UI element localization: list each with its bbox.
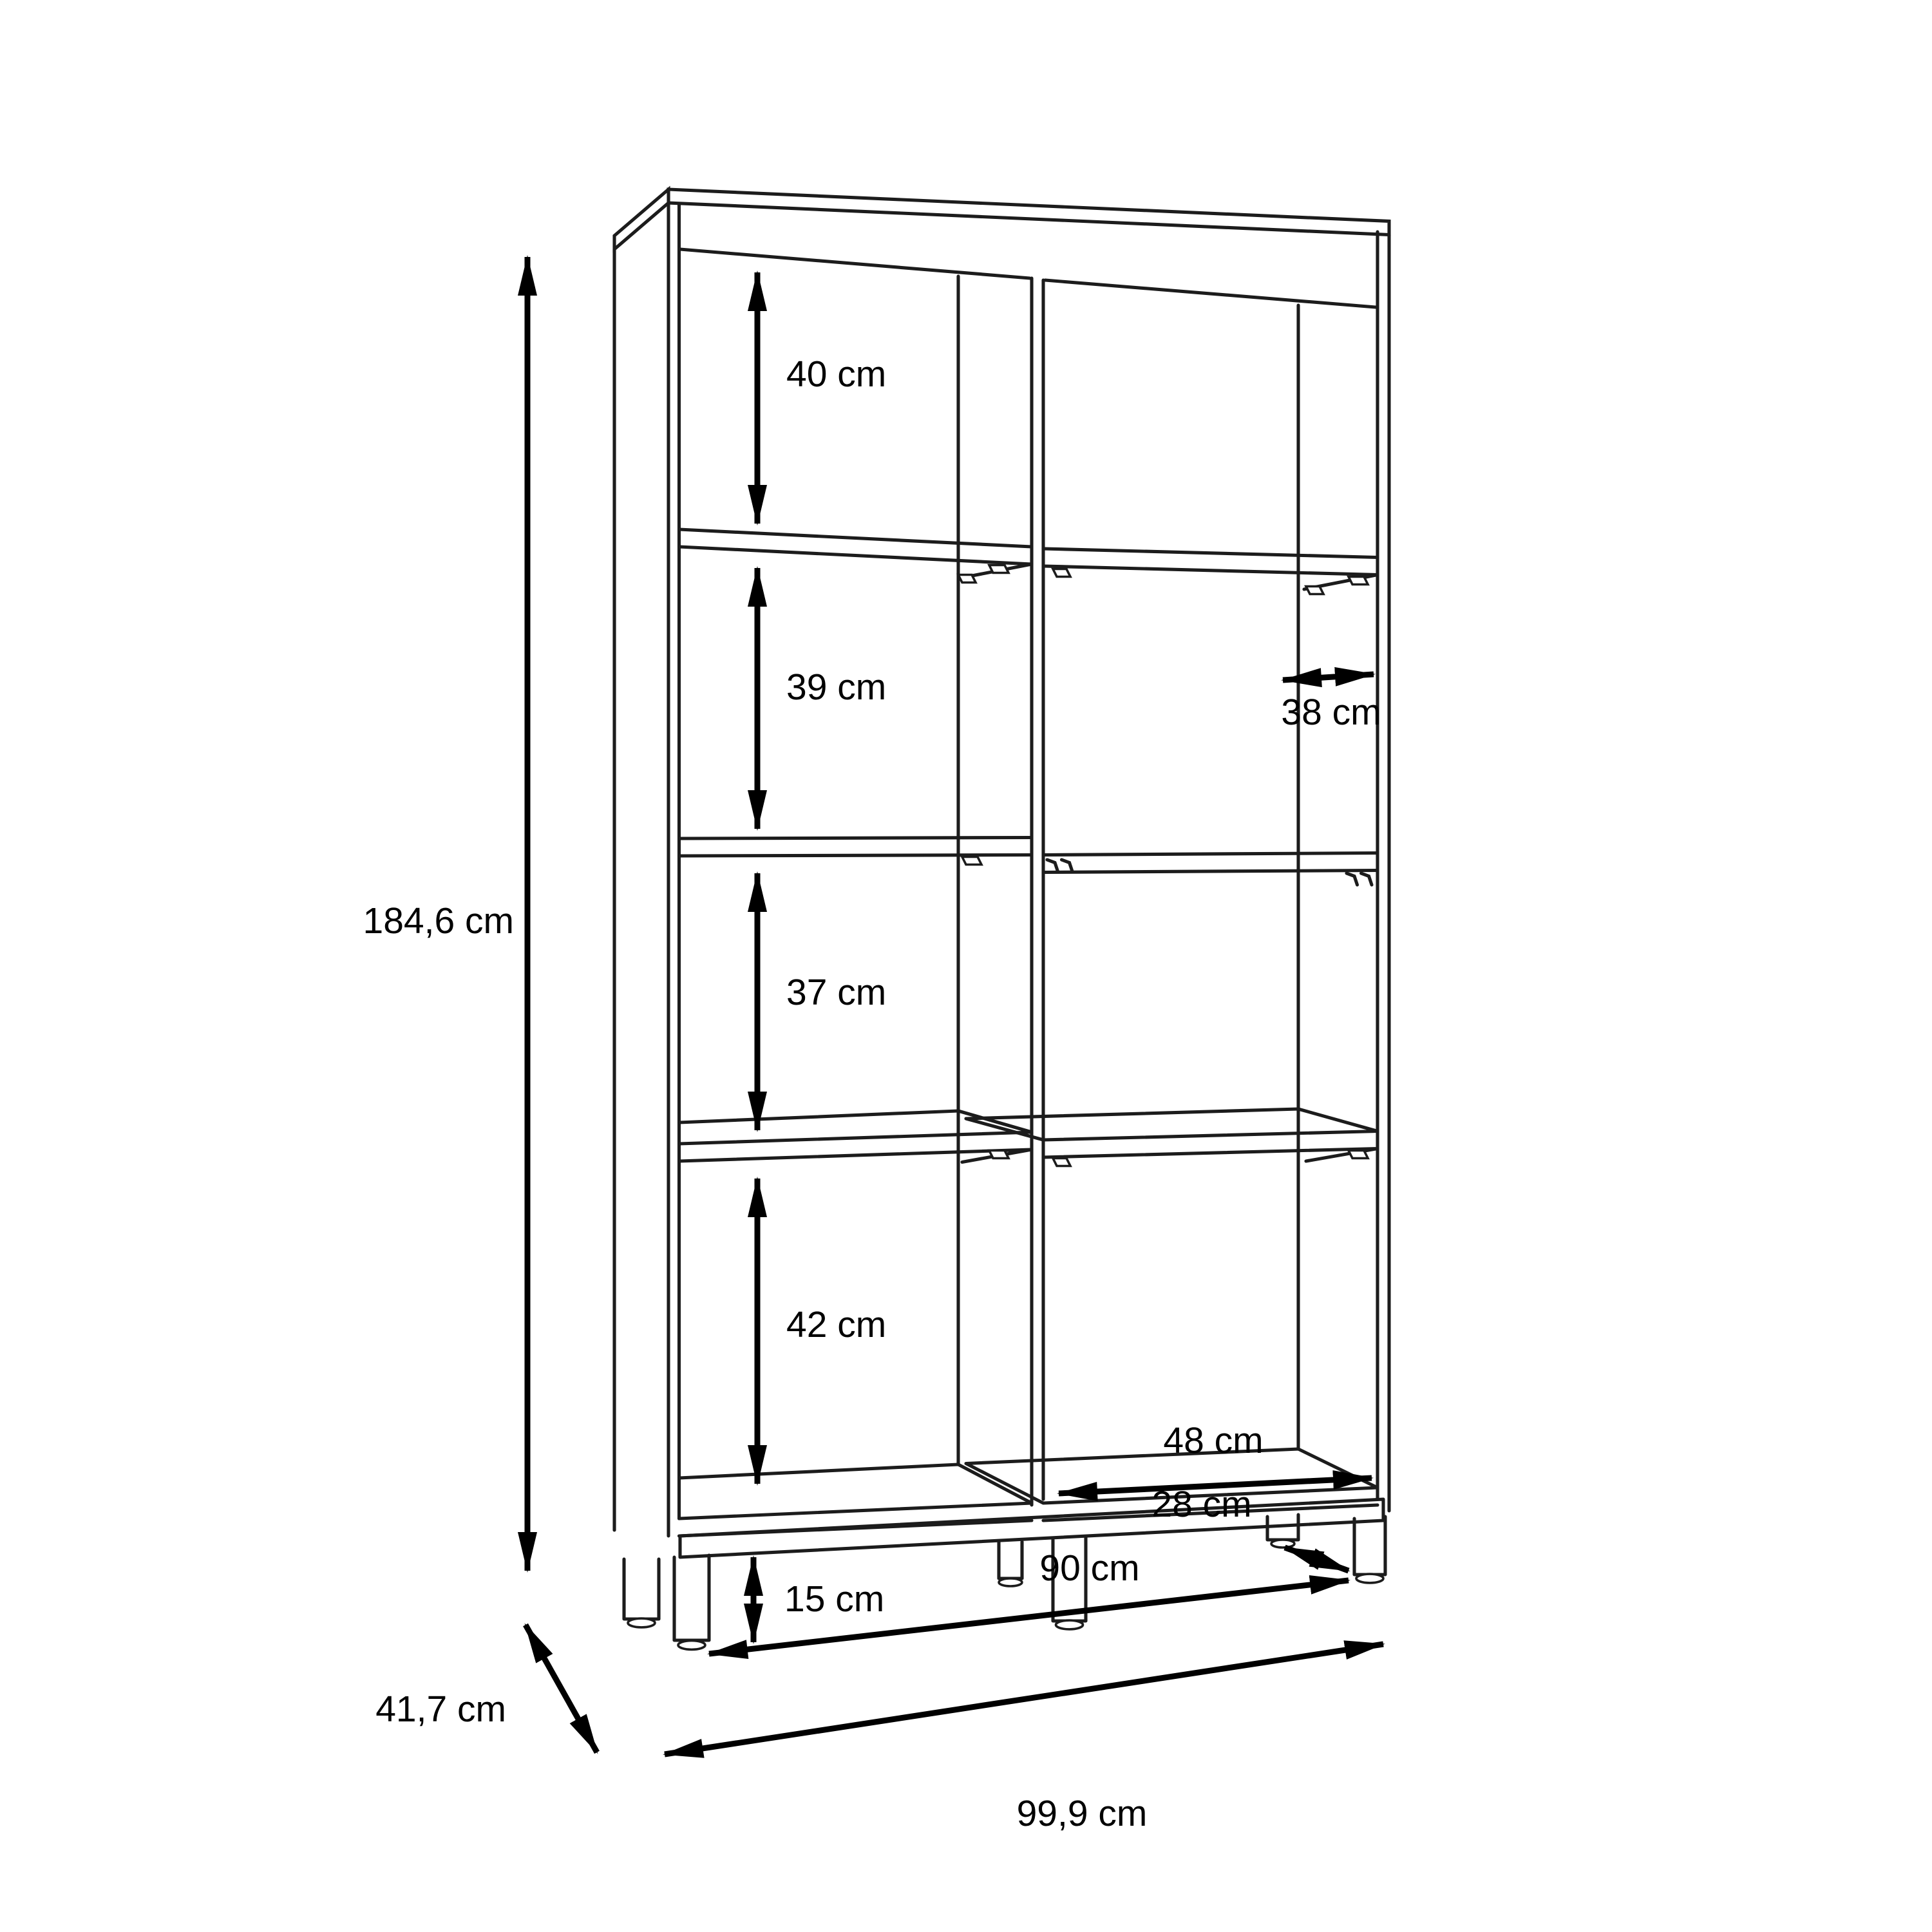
back-center-leg: [999, 1542, 1022, 1578]
top-board-front-edge: [668, 189, 1389, 235]
dim-overall-height: 184,6 cm: [363, 257, 527, 1571]
diagram-canvas: 184,6 cm 40 cm 39 cm 37 cm 42 cm 38 cm 4…: [0, 0, 1932, 1932]
left-panel-front-edge: [668, 203, 679, 1536]
dim-label-bottom-inner-width: 48 cm: [1163, 1420, 1263, 1461]
dim-overall-width: 99,9 cm: [665, 1644, 1383, 1834]
front-left-leg: [674, 1555, 709, 1640]
leg-foot: [999, 1578, 1022, 1586]
ceiling-back-edge-right: [1045, 280, 1376, 307]
cabinet-line-art: [614, 189, 1389, 1649]
base-frame-rail: [680, 1499, 1383, 1557]
shelf-hook: [1347, 873, 1372, 885]
right-panel-front-edge: [1378, 232, 1389, 1511]
dim-row3-height: 37 cm: [757, 873, 886, 1130]
dim-label-shelf-depth: 38 cm: [1281, 692, 1381, 733]
shelf-peg: [1349, 1151, 1368, 1159]
shelf-peg: [1349, 577, 1368, 585]
leg-foot: [1056, 1620, 1083, 1629]
front-right-leg: [1354, 1517, 1385, 1575]
leg-foot: [1271, 1540, 1294, 1548]
dim-label-row2-height: 39 cm: [786, 667, 886, 708]
dim-shelf-depth: 38 cm: [1281, 674, 1381, 733]
center-divider-front-edge: [1032, 278, 1043, 1505]
leg-foot: [1356, 1574, 1383, 1583]
leg-foot: [628, 1618, 655, 1627]
ceiling-back-edge-left: [680, 249, 1030, 278]
dim-label-overall-width: 99,9 cm: [1017, 1793, 1148, 1834]
bottom-boards: [679, 1449, 1378, 1536]
shelf-peg: [962, 857, 981, 865]
dim-row4-height: 42 cm: [757, 1179, 886, 1484]
dim-label-base-height: 15 cm: [784, 1578, 884, 1620]
dim-label-overall-depth: 41,7 cm: [375, 1689, 506, 1730]
dim-label-leg-span-width: 90 cm: [1039, 1548, 1139, 1589]
dim-row2-height: 39 cm: [757, 568, 886, 829]
shelf-peg: [1053, 569, 1070, 577]
shelf-peg: [989, 1151, 1009, 1159]
shelf-row2: [679, 838, 1378, 885]
dim-label-row3-height: 37 cm: [786, 972, 886, 1013]
back-left-leg: [624, 1559, 659, 1619]
dim-label-overall-height: 184,6 cm: [363, 900, 514, 942]
dim-base-height: 15 cm: [753, 1557, 884, 1642]
shelf-hook: [1047, 860, 1072, 871]
furniture-dimension-diagram: 184,6 cm 40 cm 39 cm 37 cm 42 cm 38 cm 4…: [0, 0, 1932, 1932]
shelf-row1: [679, 529, 1378, 594]
dim-label-row1-height: 40 cm: [786, 354, 886, 395]
shelf-peg: [989, 565, 1009, 573]
shelf-peg: [1053, 1159, 1070, 1166]
shelf-peg: [958, 575, 976, 583]
dim-row1-height: 40 cm: [757, 272, 886, 524]
dim-overall-depth: 41,7 cm: [375, 1625, 597, 1752]
shelf-row3: [679, 1109, 1378, 1166]
leg-foot: [678, 1641, 705, 1650]
dim-label-row4-height: 42 cm: [786, 1304, 886, 1345]
shelf-peg: [1306, 587, 1323, 594]
top-board-left-cap: [614, 189, 668, 249]
dim-label-leg-span-depth: 28 cm: [1151, 1484, 1251, 1525]
